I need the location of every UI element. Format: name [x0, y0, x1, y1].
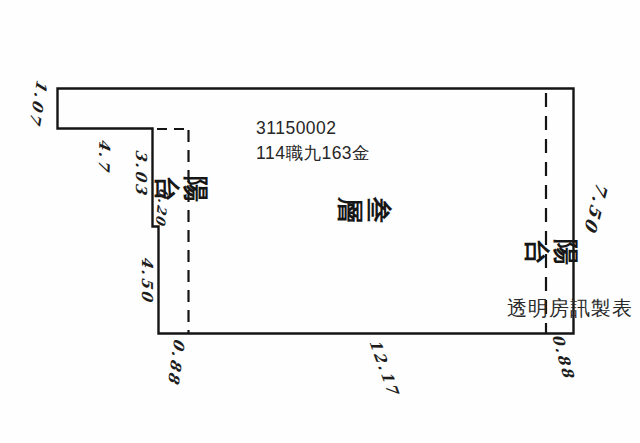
parcel-id: 31150002 — [256, 118, 337, 139]
watermark-text: 透明房訊製表 — [507, 295, 633, 322]
land-reference: 114職九163金 — [256, 141, 370, 165]
floor-plan-page: 31150002 114職九163金 陽台 叁層 陽台 透明房訊製表 1.07 … — [0, 0, 640, 443]
balcony-right-label: 陽台 — [522, 238, 579, 266]
dimension-left-wall-upper: 3.03 — [132, 148, 150, 197]
dimension-left-notch-offset: 4.7 — [94, 138, 113, 175]
dimension-left-wall-lower: 4.50 — [138, 255, 156, 304]
floor-plan-drawing — [0, 0, 640, 443]
floor-level-label: 叁層 — [335, 196, 392, 224]
